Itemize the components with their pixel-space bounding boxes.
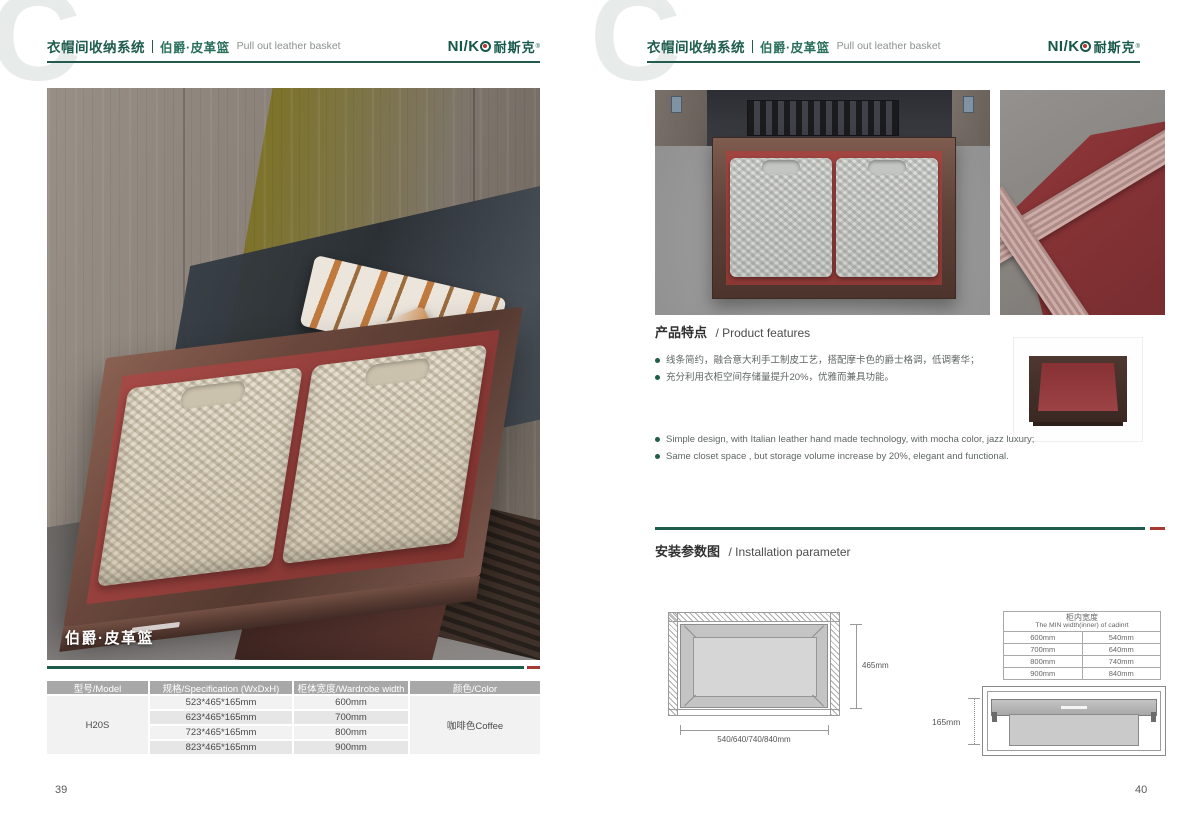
width-cell: 900mm xyxy=(294,741,408,754)
bullet-icon xyxy=(655,454,660,459)
dimension-tick xyxy=(828,725,829,735)
registered-mark: ® xyxy=(1136,44,1140,50)
registered-mark: ® xyxy=(536,44,540,50)
min-width-table-header: 柜内宽度 The MIN width(inner) of cadinrt xyxy=(1004,612,1161,632)
color-cell: 咖啡色Coffee xyxy=(410,696,540,754)
header-titles: 衣帽间收纳系统 伯爵·皮革篮 Pull out leather basket xyxy=(47,36,341,56)
basket-logo-mark xyxy=(1061,706,1087,709)
sweater-collar xyxy=(180,380,247,410)
wardrobe-width-value: 800mm xyxy=(1004,656,1083,668)
logo-latin: NI/K xyxy=(1048,38,1080,55)
mount-hook xyxy=(1151,712,1156,722)
table-row: 800mm 740mm xyxy=(1004,656,1161,668)
slide-bracket xyxy=(963,96,974,113)
installation-heading-cn: 安装参数图 xyxy=(655,544,720,559)
feature-text: 线条简约，融合意大利手工制皮工艺，搭配摩卡色的爵士格调，低调奢华； xyxy=(666,355,980,367)
wardrobe-width-value: 900mm xyxy=(1004,668,1083,680)
cabinet-wall-hatch xyxy=(668,612,678,716)
feature-text: Same closet space , but storage volume i… xyxy=(666,451,1009,463)
spec-cell: 823*465*165mm xyxy=(150,741,292,754)
sweater-collar xyxy=(364,357,431,387)
product-title-en: Pull out leather basket xyxy=(837,40,941,52)
product-title-en: Pull out leather basket xyxy=(237,40,341,52)
model-cell: H20S xyxy=(47,696,148,754)
specification-table: 型号/Model 规格/Specification (WxDxH) 柜体宽度/W… xyxy=(47,681,540,754)
table-row: 900mm 840mm xyxy=(1004,668,1161,680)
bevel-line xyxy=(684,694,696,706)
nisko-logo: NI/K 耐斯克 ® xyxy=(448,37,540,56)
side-view-diagram: 165mm xyxy=(932,686,1182,766)
wardrobe-width-value: 600mm xyxy=(1004,632,1083,644)
main-product-photo: 伯爵·皮革篮 xyxy=(47,88,540,660)
bevel-line xyxy=(684,625,696,637)
title-divider xyxy=(752,40,753,53)
feature-bullet-cn: 充分利用衣柜空间存储量提升20%，优雅而兼具功能。 xyxy=(655,372,1055,384)
photo-caption: 伯爵·皮革篮 xyxy=(65,627,154,648)
feature-bullet-cn: 线条简约，融合意大利手工制皮工艺，搭配摩卡色的爵士格调，低调奢华； xyxy=(655,355,1055,367)
features-heading-cn: 产品特点 xyxy=(655,325,707,340)
nisko-logo: NI/K 耐斯克 ® xyxy=(1048,37,1140,56)
dimension-tick xyxy=(968,744,980,745)
inner-width-value: 740mm xyxy=(1082,656,1161,668)
folded-sweater xyxy=(96,367,303,587)
feature-text: Simple design, with Italian leather hand… xyxy=(666,434,1034,446)
features-heading-en: / Product features xyxy=(715,326,810,340)
mount-hook xyxy=(992,712,997,722)
section-rule-red xyxy=(527,666,540,669)
height-dimension-label: 165mm xyxy=(932,717,960,727)
product-title-cn: 伯爵·皮革篮 xyxy=(160,37,230,56)
page-number: 40 xyxy=(1135,784,1147,796)
bullet-icon xyxy=(655,358,660,363)
sweater-collar xyxy=(868,160,907,174)
header-rule xyxy=(47,61,540,63)
section-rule-green xyxy=(655,527,1145,530)
width-dimension-label: 540/640/740/840mm xyxy=(680,735,828,744)
basket-red-interior xyxy=(1038,363,1118,411)
cabinet-front-outline xyxy=(982,686,1166,756)
page-header: 衣帽间收纳系统 伯爵·皮革篮 Pull out leather basket N… xyxy=(47,36,540,56)
basket-frame-outline xyxy=(680,624,828,708)
min-width-title-en: The MIN width(inner) of cadinrt xyxy=(1004,622,1160,630)
table-row: 600mm 540mm xyxy=(1004,632,1161,644)
basket-inner-outline xyxy=(693,637,817,697)
page-number: 39 xyxy=(55,784,67,796)
wardrobe-grill xyxy=(747,100,899,136)
top-view-diagram: 465mm 540/640/740/840mm xyxy=(658,598,908,753)
logo-chinese: 耐斯克 xyxy=(494,37,536,56)
spec-cell: 723*465*165mm xyxy=(150,726,292,739)
min-width-table: 柜内宽度 The MIN width(inner) of cadinrt 600… xyxy=(1003,611,1161,680)
feature-bullet-en: Same closet space , but storage volume i… xyxy=(655,451,1055,463)
table-row: 700mm 640mm xyxy=(1004,644,1161,656)
feature-text: 充分利用衣柜空间存储量提升20%，优雅而兼具功能。 xyxy=(666,372,894,384)
col-header-spec: 规格/Specification (WxDxH) xyxy=(150,681,292,694)
depth-dimension-label: 465mm xyxy=(862,661,889,670)
folded-sweater xyxy=(836,158,938,277)
header-titles: 衣帽间收纳系统 伯爵·皮革篮 Pull out leather basket xyxy=(647,36,941,56)
installation-heading-en: / Installation parameter xyxy=(728,545,850,559)
col-header-model: 型号/Model xyxy=(47,681,148,694)
spec-cell: 523*465*165mm xyxy=(150,696,292,709)
dimension-tick xyxy=(850,708,862,709)
corner-detail-photo xyxy=(1000,90,1165,315)
col-header-width: 柜体宽度/Wardrobe width xyxy=(294,681,408,694)
dimension-tick xyxy=(850,624,862,625)
dimension-tick xyxy=(968,698,980,699)
product-title-cn: 伯爵·皮革篮 xyxy=(760,37,830,56)
title-divider xyxy=(152,40,153,53)
col-header-color: 颜色/Color xyxy=(410,681,540,694)
folded-sweater xyxy=(281,345,488,565)
bevel-line xyxy=(812,625,824,637)
section-rule-red xyxy=(1150,527,1165,530)
page-left: C 衣帽间收纳系统 伯爵·皮革篮 Pull out leather basket… xyxy=(0,0,600,820)
cabinet-wall-hatch xyxy=(830,612,840,716)
inner-width-value: 640mm xyxy=(1082,644,1161,656)
system-title: 衣帽间收纳系统 xyxy=(647,36,745,56)
installation-heading: 安装参数图 / Installation parameter xyxy=(655,541,851,561)
bullet-icon xyxy=(655,375,660,380)
spec-cell: 623*465*165mm xyxy=(150,711,292,724)
slide-bracket xyxy=(671,96,682,113)
logo-o-icon xyxy=(1080,41,1091,52)
cabinet-wall-hatch xyxy=(668,612,840,622)
bevel-line xyxy=(812,694,824,706)
width-cell: 600mm xyxy=(294,696,408,709)
width-cell: 700mm xyxy=(294,711,408,724)
features-heading: 产品特点 / Product features xyxy=(655,322,810,342)
basket-product-photo xyxy=(1013,337,1143,442)
cabinet-front-opening xyxy=(668,709,840,716)
leather-basket-top-view xyxy=(712,137,956,299)
section-rule-green xyxy=(47,666,524,669)
top-view-photo xyxy=(655,90,990,315)
inner-width-value: 840mm xyxy=(1082,668,1161,680)
leather-basket-interior xyxy=(86,330,499,604)
basket-body-outline xyxy=(1009,714,1139,746)
depth-dimension-line xyxy=(856,624,857,708)
logo-chinese: 耐斯克 xyxy=(1094,37,1136,56)
width-dimension-line xyxy=(680,730,828,731)
wardrobe-width-value: 700mm xyxy=(1004,644,1083,656)
page-header: 衣帽间收纳系统 伯爵·皮革篮 Pull out leather basket N… xyxy=(647,36,1140,56)
sweater-collar xyxy=(762,160,801,174)
inner-width-value: 540mm xyxy=(1082,632,1161,644)
bullet-icon xyxy=(655,437,660,442)
feature-bullet-en: Simple design, with Italian leather hand… xyxy=(655,434,1055,446)
basket-base xyxy=(1033,422,1123,426)
width-cell: 800mm xyxy=(294,726,408,739)
page-right: C 衣帽间收纳系统 伯爵·皮革篮 Pull out leather basket… xyxy=(600,0,1200,820)
leather-interior xyxy=(726,151,942,285)
min-width-title-cn: 柜内宽度 xyxy=(1004,613,1160,622)
logo-latin: NI/K xyxy=(448,38,480,55)
height-dimension-line xyxy=(974,698,975,744)
header-rule xyxy=(647,61,1140,63)
logo-o-icon xyxy=(480,41,491,52)
folded-sweater xyxy=(730,158,832,277)
system-title: 衣帽间收纳系统 xyxy=(47,36,145,56)
dimension-tick xyxy=(680,725,681,735)
leather-basket xyxy=(63,307,523,627)
